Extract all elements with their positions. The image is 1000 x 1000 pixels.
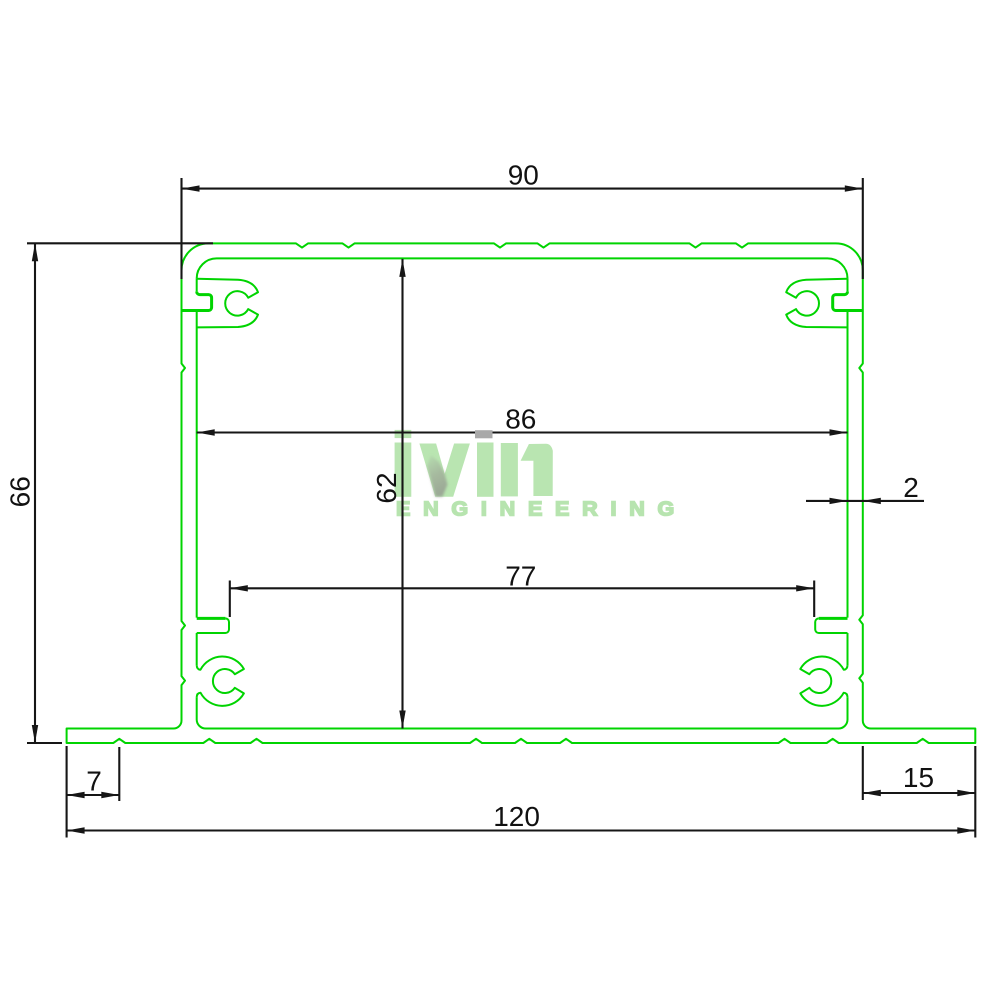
svg-text:15: 15: [903, 762, 934, 793]
svg-text:62: 62: [371, 472, 402, 503]
svg-text:7: 7: [86, 766, 102, 797]
svg-text:77: 77: [505, 561, 536, 592]
svg-text:120: 120: [493, 801, 540, 832]
svg-text:66: 66: [5, 476, 36, 507]
svg-text:90: 90: [508, 160, 539, 191]
svg-text:2: 2: [903, 472, 919, 503]
svg-text:ENGINEERING: ENGINEERING: [396, 499, 687, 521]
svg-text:86: 86: [505, 404, 536, 435]
